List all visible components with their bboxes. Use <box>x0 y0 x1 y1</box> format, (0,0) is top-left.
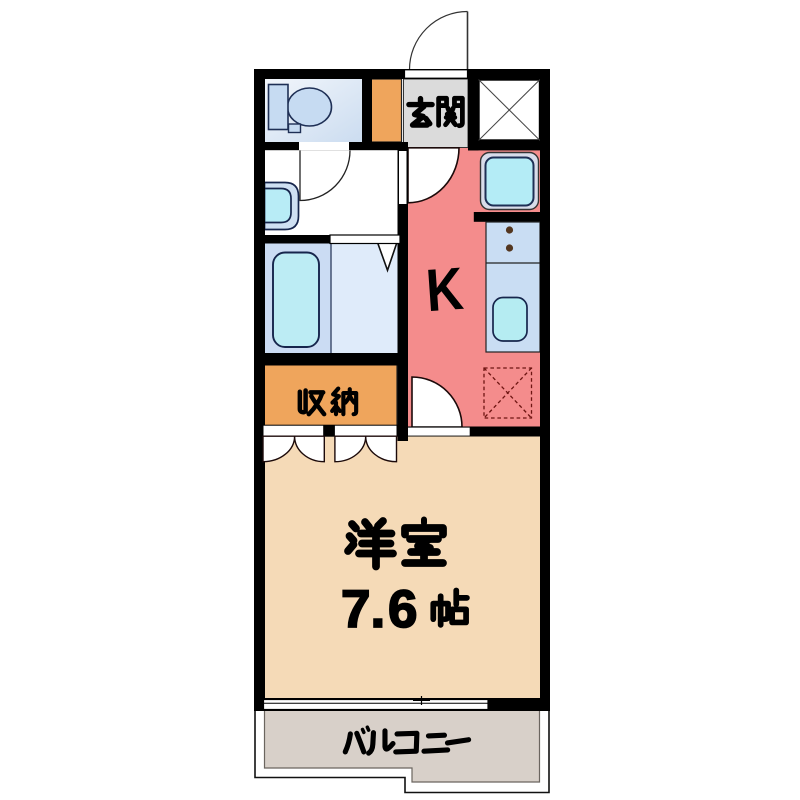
svg-text:7.: 7. <box>341 580 385 639</box>
svg-text:6: 6 <box>388 580 417 639</box>
svg-text:K: K <box>424 255 466 324</box>
